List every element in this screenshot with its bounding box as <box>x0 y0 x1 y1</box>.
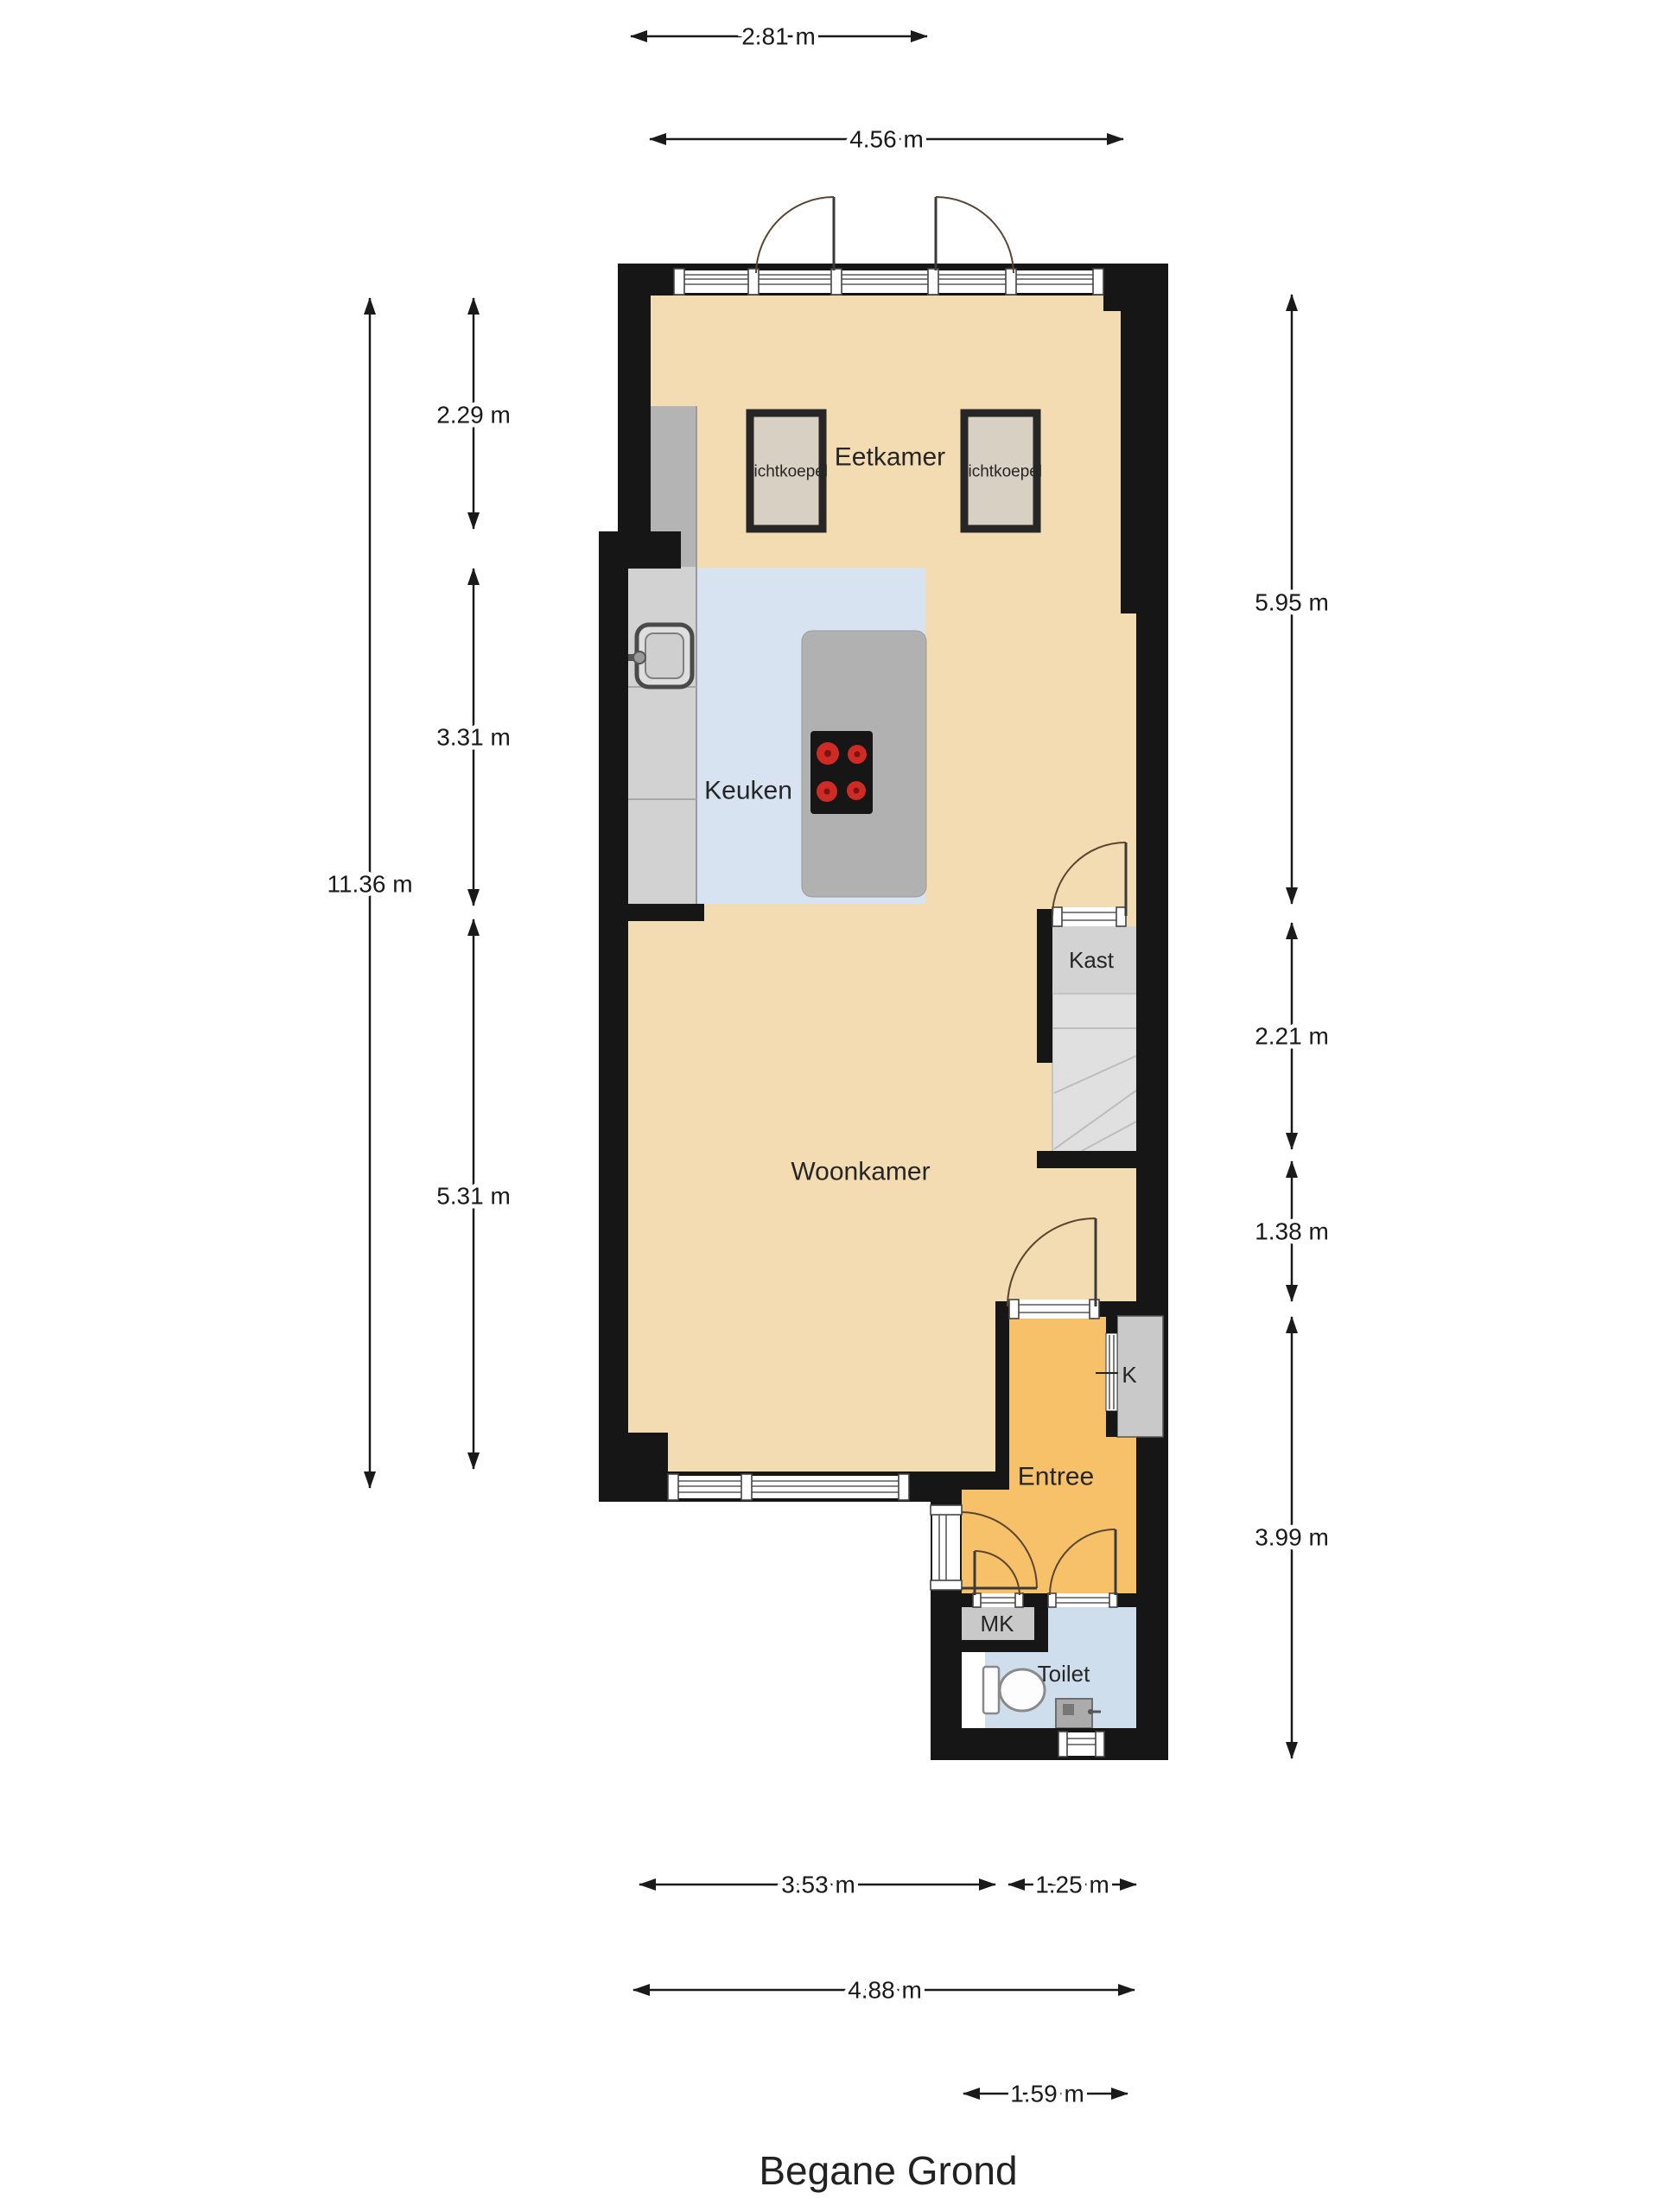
svg-text:5.31 m: 5.31 m <box>436 1183 511 1210</box>
dim-bottom-seg2: 1.25 m <box>1008 1872 1136 1898</box>
svg-text:3.53 m: 3.53 m <box>781 1872 855 1898</box>
k-niche-cap <box>1106 1411 1117 1437</box>
wall-kitchen-stub <box>622 904 704 921</box>
wall-left-upper <box>618 296 651 550</box>
label-k: K <box>1122 1362 1137 1388</box>
svg-text:3.31 m: 3.31 m <box>436 724 511 751</box>
cooktop-icon <box>810 731 873 814</box>
room-eetkamer-floor <box>651 296 1121 567</box>
label-keuken: Keuken <box>704 777 792 805</box>
window-toilet <box>1058 1732 1104 1757</box>
wall-entree-left <box>995 1301 1009 1471</box>
wall-kast-left <box>1037 909 1052 1063</box>
wall-right-lower <box>1136 613 1168 1760</box>
svg-text:5.95 m: 5.95 m <box>1255 589 1329 616</box>
svg-text:2.21 m: 2.21 m <box>1255 1023 1329 1050</box>
dim-right-seg3: 1.38 m <box>1255 1161 1329 1301</box>
svg-text:2.29 m: 2.29 m <box>436 402 511 429</box>
room-toilet-floor-upper <box>1048 1607 1136 1652</box>
wall-entree-top-right <box>1099 1301 1136 1317</box>
burner-center <box>824 789 830 795</box>
floorplan-page: Eetkamer Lichtkoepel Lichtkoepel Keuken … <box>0 0 1659 2212</box>
dim-right-seg2: 2.21 m <box>1255 923 1329 1149</box>
burner-center <box>824 750 831 757</box>
svg-text:1.25 m: 1.25 m <box>1035 1872 1109 1898</box>
kitchen-counter-lower <box>628 567 696 904</box>
sink-drain <box>633 652 645 664</box>
wall-mk-stub <box>1023 1593 1034 1607</box>
wall-mk-pier <box>1034 1593 1048 1652</box>
wall-top-left-corner <box>618 264 674 296</box>
burner-center <box>855 752 861 758</box>
toilet-niche <box>962 1652 985 1728</box>
label-lichtkoepel: Lichtkoepel <box>745 463 828 481</box>
wall-mk-bottom <box>962 1640 1034 1652</box>
dim-bottom-extension: 1.59 m <box>963 2081 1128 2107</box>
wall-stairs-bottom <box>1037 1151 1136 1168</box>
basin-tap-dot <box>1088 1709 1093 1714</box>
kast-door-frame <box>1052 907 1126 926</box>
french-door-right <box>936 197 1014 273</box>
mk-door-frame <box>973 1593 1023 1607</box>
toilet-door-frame <box>1048 1593 1117 1607</box>
label-eetkamer: Eetkamer <box>835 443 945 472</box>
entree-door-frame <box>1009 1300 1099 1319</box>
dim-right-seg4: 3.99 m <box>1255 1317 1329 1758</box>
stairs <box>1052 994 1136 1151</box>
window-bottom <box>668 1474 909 1500</box>
toilet-tank <box>983 1667 999 1713</box>
dim-bottom-full: 4.88 m <box>633 1977 1135 2004</box>
dim-left-seg3: 5.31 m <box>436 919 511 1469</box>
dim-bottom-seg1: 3.53 m <box>639 1872 995 1898</box>
wall-extension-bottom <box>931 1728 1168 1760</box>
basin-drain <box>1063 1704 1074 1715</box>
label-woonkamer: Woonkamer <box>791 1158 930 1186</box>
front-door-frame <box>931 1505 962 1590</box>
dim-left-full: 11.36 m <box>327 298 412 1488</box>
svg-text:4.56 m: 4.56 m <box>849 126 924 153</box>
svg-text:11.36 m: 11.36 m <box>327 871 412 898</box>
svg-text:1.59 m: 1.59 m <box>1010 2081 1084 2107</box>
burner-center <box>854 788 860 794</box>
wall-right-upper <box>1121 296 1168 613</box>
dim-top-partial: 2.81 m <box>631 23 927 50</box>
svg-text:2.81 m: 2.81 m <box>741 23 816 50</box>
french-door-left <box>756 197 834 273</box>
label-mk: MK <box>981 1611 1015 1637</box>
dim-top-full: 4.56 m <box>650 126 1123 153</box>
svg-text:4.88 m: 4.88 m <box>848 1977 922 2004</box>
dim-left-seg1: 2.29 m <box>436 298 511 529</box>
wall-left-lower <box>599 550 628 1502</box>
wall-toilet-stub <box>1117 1593 1136 1607</box>
label-lichtkoepel: Lichtkoepel <box>959 463 1042 481</box>
label-kast: Kast <box>1069 947 1115 973</box>
svg-text:3.99 m: 3.99 m <box>1255 1524 1329 1551</box>
floorplan-drawing: Eetkamer Lichtkoepel Lichtkoepel Keuken … <box>0 0 1659 2212</box>
page-title: Begane Grond <box>759 2148 1017 2193</box>
svg-text:1.38 m: 1.38 m <box>1255 1218 1329 1245</box>
wall-mk-stub <box>962 1593 973 1607</box>
k-niche-cap <box>1106 1316 1117 1333</box>
dim-right-seg1: 5.95 m <box>1255 295 1329 904</box>
sink-bowl <box>645 633 683 678</box>
dim-left-seg2: 3.31 m <box>436 569 511 906</box>
label-toilet: Toilet <box>1038 1661 1090 1687</box>
window-top <box>674 269 1103 295</box>
label-entree: Entree <box>1018 1463 1094 1491</box>
wall-entree-corner <box>962 1471 1009 1490</box>
